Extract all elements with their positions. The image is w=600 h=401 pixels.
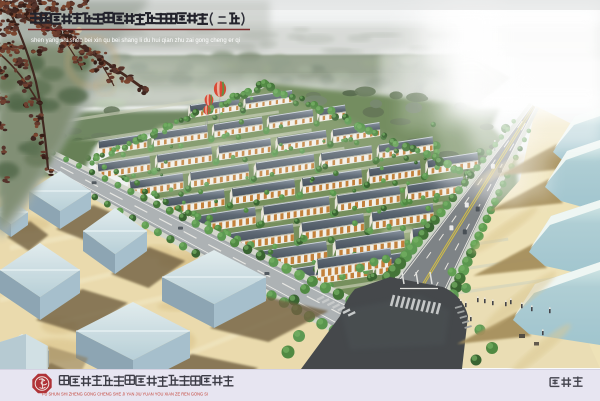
svg-text:shen yang shi shen bei xin qu: shen yang shi shen bei xin qu bei shang … bbox=[31, 37, 240, 44]
svg-text:FU SHUN SHI ZHENG GONG CHENG S: FU SHUN SHI ZHENG GONG CHENG SHE JI YAN … bbox=[42, 392, 208, 397]
